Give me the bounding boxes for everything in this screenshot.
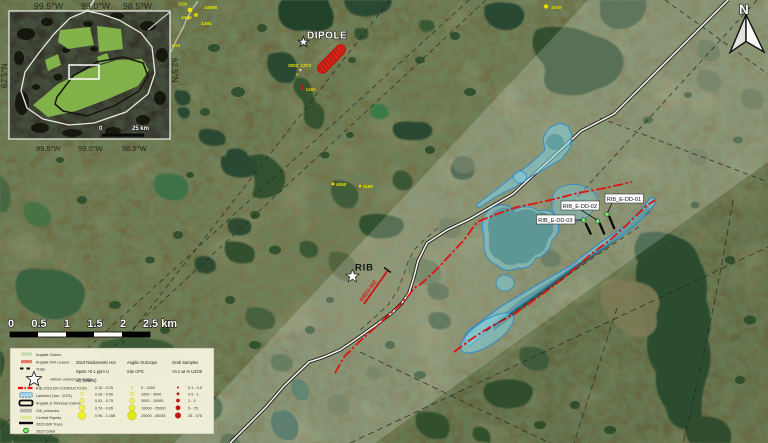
svg-text:0.5: 0.5 bbox=[31, 318, 46, 330]
svg-text:0.15 - 0.25: 0.15 - 0.25 bbox=[95, 386, 113, 390]
svg-text:1 - 2: 1 - 2 bbox=[188, 399, 196, 403]
svg-text:34596: 34596 bbox=[204, 5, 218, 11]
svg-text:62.5°N: 62.5°N bbox=[0, 63, 9, 88]
svg-text:62.5°N: 62.5°N bbox=[170, 58, 179, 83]
svg-text:eq. (valent): eq. (valent) bbox=[76, 378, 97, 383]
svg-text:2023 Drill Trace: 2023 Drill Trace bbox=[36, 423, 63, 427]
svg-text:10000 - 25000: 10000 - 25000 bbox=[141, 406, 166, 410]
svg-text:99.5°W: 99.5°W bbox=[34, 1, 63, 11]
svg-text:25 km: 25 km bbox=[132, 126, 149, 132]
svg-text:Angilak Claims: Angilak Claims bbox=[36, 353, 61, 357]
svg-text:1491: 1491 bbox=[201, 21, 212, 27]
svg-text:0: 0 bbox=[8, 318, 14, 330]
svg-text:0.26 - 0.50: 0.26 - 0.50 bbox=[95, 393, 113, 397]
svg-text:2506: 2506 bbox=[178, 2, 188, 7]
svg-text:1: 1 bbox=[64, 318, 70, 330]
svg-text:1.5: 1.5 bbox=[87, 318, 102, 330]
svg-text:0.76 - 0.95: 0.76 - 0.95 bbox=[95, 406, 113, 410]
svg-text:99.0°W: 99.0°W bbox=[78, 144, 104, 153]
svg-text:1506: 1506 bbox=[551, 5, 562, 11]
svg-text:3002_1373: 3002_1373 bbox=[288, 63, 311, 68]
svg-text:99.5°W: 99.5°W bbox=[36, 144, 62, 153]
svg-text:99.0°W: 99.0°W bbox=[81, 1, 110, 11]
svg-text:0.96 - 1.168: 0.96 - 1.168 bbox=[95, 414, 115, 418]
svg-text:4460: 4460 bbox=[181, 15, 192, 21]
svg-text:DIPOLE: DIPOLE bbox=[307, 31, 347, 42]
svg-text:Angilak & Tributary Claims: Angilak & Tributary Claims bbox=[36, 402, 81, 406]
svg-text:Spots >0.1 ppm U: Spots >0.1 ppm U bbox=[76, 369, 109, 374]
svg-text:1180: 1180 bbox=[363, 184, 373, 189]
svg-text:RIB: RIB bbox=[355, 263, 374, 274]
svg-text:Gill_volcanics: Gill_volcanics bbox=[36, 409, 59, 413]
svg-text:Site CPS: Site CPS bbox=[127, 369, 144, 374]
svg-text:0 - 1000: 0 - 1000 bbox=[141, 386, 155, 390]
svg-text:1000 - 3000: 1000 - 3000 bbox=[141, 393, 161, 397]
svg-text:2023 Radiometric Hot: 2023 Radiometric Hot bbox=[76, 360, 116, 365]
svg-text:RIB_E-DD-03: RIB_E-DD-03 bbox=[538, 218, 572, 224]
svg-text:2.5 km: 2.5 km bbox=[143, 318, 177, 330]
svg-text:5 - 75: 5 - 75 bbox=[188, 406, 198, 410]
svg-text:0.51 - 0.75: 0.51 - 0.75 bbox=[95, 399, 113, 403]
svg-text:1264: 1264 bbox=[171, 43, 181, 48]
svg-text:0.5 - 1: 0.5 - 1 bbox=[188, 393, 199, 397]
svg-text:25000 - 45035: 25000 - 45035 bbox=[141, 414, 166, 418]
svg-text:0.1 - 0.5: 0.1 - 0.5 bbox=[188, 386, 202, 390]
svg-text:Central Rapids: Central Rapids bbox=[36, 416, 61, 420]
svg-text:N: N bbox=[739, 2, 749, 17]
svg-text:Angilak Drill Leases: Angilak Drill Leases bbox=[36, 360, 69, 364]
svg-text:2: 2 bbox=[120, 318, 126, 330]
svg-text:RIB_E-DD-02: RIB_E-DD-02 bbox=[563, 204, 597, 210]
svg-text:RIB_E-DD-01: RIB_E-DD-01 bbox=[607, 197, 641, 203]
svg-text:3000 - 10000: 3000 - 10000 bbox=[141, 399, 163, 403]
svg-text:25 - 476: 25 - 476 bbox=[188, 414, 202, 418]
svg-text:4060: 4060 bbox=[336, 182, 347, 187]
svg-text:1486: 1486 bbox=[306, 87, 317, 92]
svg-text:Lakebed (Jan - 2021): Lakebed (Jan - 2021) bbox=[36, 394, 73, 398]
svg-text:2023 Collar: 2023 Collar bbox=[36, 430, 56, 434]
svg-text:Grab Samples: Grab Samples bbox=[172, 360, 198, 365]
svg-text:>0.1 wt % U3O8: >0.1 wt % U3O8 bbox=[172, 369, 203, 374]
svg-text:RIB 2023 EM CONDUCTORS: RIB 2023 EM CONDUCTORS bbox=[36, 387, 87, 391]
svg-text:98.5°W: 98.5°W bbox=[123, 1, 152, 11]
svg-text:Angilix Outcrops: Angilix Outcrops bbox=[127, 360, 157, 365]
svg-text:Trails: Trails bbox=[36, 367, 45, 371]
svg-text:98.5°W: 98.5°W bbox=[122, 144, 148, 153]
